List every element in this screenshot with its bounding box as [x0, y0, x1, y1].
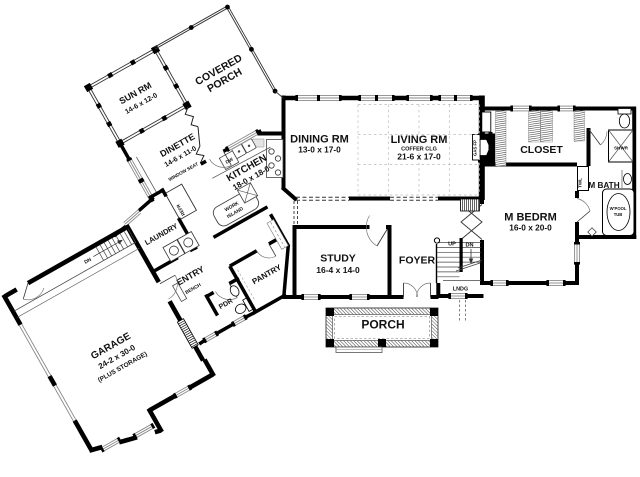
svg-text:TWL: TWL — [578, 178, 583, 188]
svg-text:GAS FP: GAS FP — [473, 140, 478, 156]
svg-text:DN: DN — [465, 243, 473, 249]
svg-text:PORCH: PORCH — [361, 318, 404, 332]
svg-text:UP: UP — [448, 242, 456, 248]
svg-text:LIVING RM: LIVING RM — [391, 134, 448, 146]
svg-text:21-6 x 17-0: 21-6 x 17-0 — [397, 152, 441, 162]
svg-text:STUDY: STUDY — [320, 253, 356, 265]
svg-text:FOYER: FOYER — [399, 255, 436, 267]
svg-text:SHWR: SHWR — [614, 146, 629, 151]
svg-text:13-0 x 17-0: 13-0 x 17-0 — [298, 145, 341, 155]
svg-text:16-4 x 14-0: 16-4 x 14-0 — [316, 265, 360, 275]
svg-text:16-0 x 20-0: 16-0 x 20-0 — [509, 223, 552, 233]
svg-text:TUB: TUB — [614, 212, 623, 217]
svg-text:M BATH: M BATH — [588, 181, 619, 190]
svg-text:LNDG: LNDG — [453, 287, 468, 293]
svg-text:CLOSET: CLOSET — [520, 144, 563, 156]
svg-text:W'POOL: W'POOL — [610, 206, 627, 211]
